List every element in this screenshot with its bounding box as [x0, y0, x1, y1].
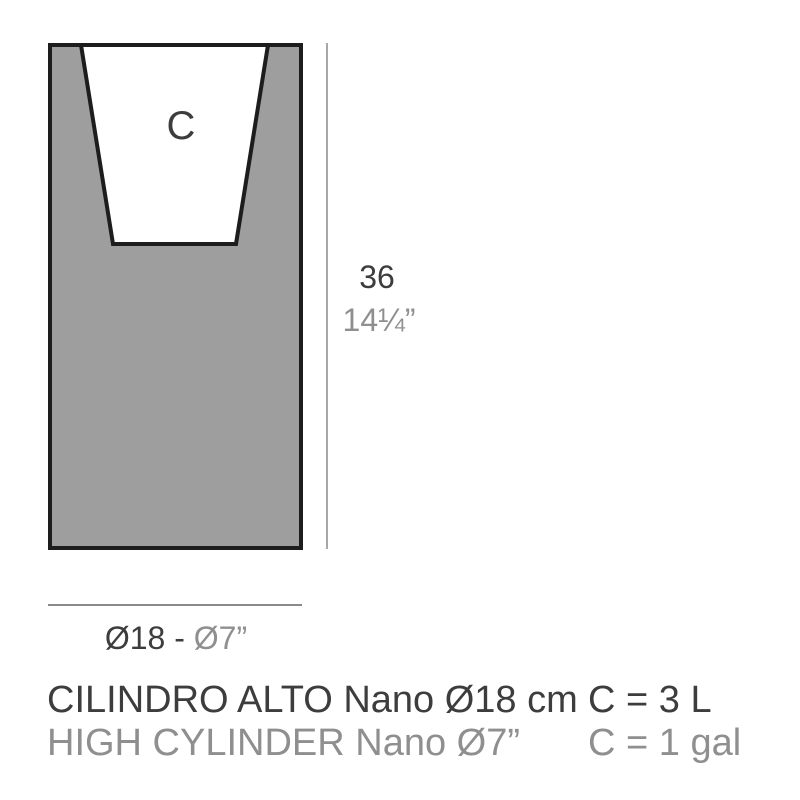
cavity-label: C	[167, 106, 196, 146]
capacity-gallons-label: C = 1 gal	[588, 724, 741, 762]
diameter-cm-label: Ø18 -	[105, 620, 194, 656]
diameter-label: Ø18 - Ø7”	[105, 622, 247, 654]
product-name-english: HIGH CYLINDER Nano Ø7”	[47, 724, 520, 762]
height-cm-label: 36	[359, 261, 395, 293]
capacity-liters-label: C = 3 L	[588, 681, 712, 719]
diameter-inches-label: Ø7”	[194, 620, 247, 656]
product-spec-sheet: C 36 14¼” Ø18 - Ø7” CILINDRO ALTO Nano Ø…	[0, 0, 800, 800]
product-name-spanish: CILINDRO ALTO Nano Ø18 cm	[47, 681, 578, 719]
height-inches-label: 14¼”	[343, 304, 416, 336]
